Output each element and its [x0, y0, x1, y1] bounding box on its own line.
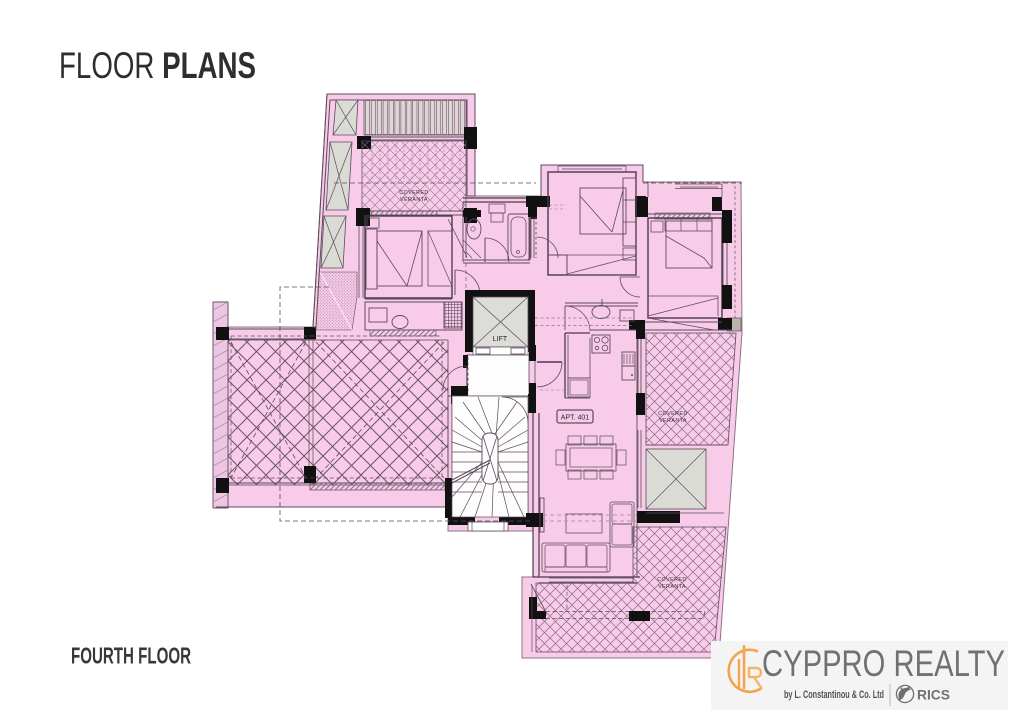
- svg-text:COVERED: COVERED: [657, 577, 686, 583]
- svg-text:FLOOR PLANS: FLOOR PLANS: [59, 45, 256, 86]
- svg-text:APT. 401: APT. 401: [561, 415, 590, 422]
- svg-text:VERANTA: VERANTA: [658, 584, 686, 590]
- svg-text:LIFT: LIFT: [493, 336, 508, 343]
- svg-text:VERANTA: VERANTA: [400, 197, 428, 203]
- svg-text:by L. Constantinou & Co. Ltd: by L. Constantinou & Co. Ltd: [784, 689, 884, 701]
- svg-text:CYPPRO REALTY: CYPPRO REALTY: [762, 643, 1005, 684]
- svg-text:FOURTH FLOOR: FOURTH FLOOR: [71, 643, 191, 669]
- svg-text:RICS: RICS: [917, 687, 950, 703]
- svg-text:VERANTA: VERANTA: [659, 418, 687, 424]
- svg-text:COVERED: COVERED: [658, 411, 687, 417]
- svg-text:COVERED: COVERED: [399, 190, 428, 196]
